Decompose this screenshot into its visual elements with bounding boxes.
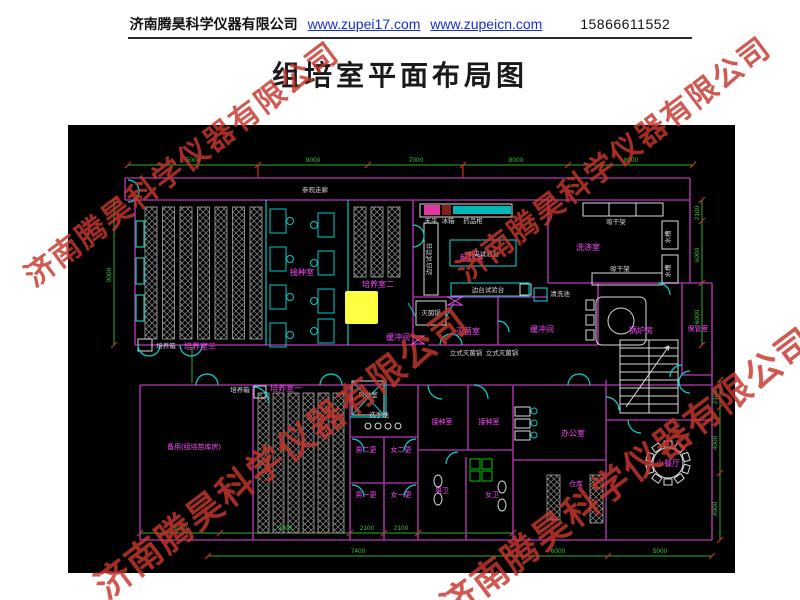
room-label: 男一更 — [356, 491, 377, 499]
rack-shelves — [145, 207, 603, 533]
room-label: 小餐厅 — [656, 459, 680, 468]
laminar-flow-hoods — [270, 209, 334, 347]
room-label: 培养室二 — [362, 279, 394, 289]
dim-label: 2100 — [694, 205, 701, 220]
room-label: 锅炉房 — [629, 325, 653, 335]
stairs — [620, 340, 678, 413]
dim-label: 4000 — [712, 435, 719, 450]
room-label: 仓库 — [569, 479, 583, 488]
equipment-label: 晾干架 — [606, 217, 626, 226]
page-header: 济南腾昊科学仪器有限公司 www.zupei17.com www.zupeicn… — [0, 14, 800, 34]
dim-label: 2100 — [360, 525, 375, 532]
phone-number: 15866611552 — [580, 16, 670, 32]
dim-label: 7400 — [351, 548, 366, 555]
dim-label: 4000 — [712, 501, 719, 516]
vendor-logo-strip — [424, 205, 511, 215]
room-label: 缓冲间 — [530, 324, 554, 334]
equipment-label: 边台试验台 — [472, 285, 505, 294]
page-title: 组培室平面布局图 — [0, 54, 800, 94]
floorplan-svg: 参观走廊 培养室三 接种室 培养室二 缓冲间 配药室 洗涤室 灭菌室 缓冲间 锅… — [68, 125, 735, 573]
equipment-label: 立式灭菌锅 — [486, 348, 519, 357]
dim-label: 8000 — [509, 157, 524, 164]
room-label: 缓冲间 — [386, 332, 410, 342]
room-label: 女一更 — [391, 490, 412, 499]
office-desks — [515, 407, 537, 440]
highlight-marker — [345, 291, 378, 324]
equipment-label: 水槽 — [663, 264, 672, 278]
hand-wash-basins — [365, 423, 401, 429]
equipment-label: 冰箱 — [442, 216, 456, 225]
dim-label: 6000 — [694, 247, 701, 262]
room-label: 接种室 — [479, 417, 500, 426]
header-divider — [128, 37, 692, 39]
room-label: 女卫 — [485, 490, 499, 499]
fan-symbols — [412, 297, 462, 344]
boiler-machine — [586, 297, 646, 345]
equipment-label: 边台试验台 — [424, 243, 433, 276]
room-label: 洗涤室 — [576, 242, 600, 252]
dim-label: 2100 — [394, 525, 409, 532]
dim-label: 6000 — [694, 309, 701, 324]
room-label: 培养室一 — [270, 383, 302, 393]
room-label: 接种室 — [432, 417, 453, 426]
room-label: 接种室 — [290, 267, 314, 277]
company-name: 济南腾昊科学仪器有限公司 — [130, 16, 298, 32]
equipment-label: 培养箱 — [230, 385, 250, 394]
floorplan-image: 参观走廊 培养室三 接种室 培养室二 缓冲间 配药室 洗涤室 灭菌室 缓冲间 锅… — [68, 125, 735, 573]
equipment-label: 立式灭菌锅 — [450, 348, 483, 357]
dim-label: 5000 — [186, 157, 201, 164]
dim-label: 7000 — [409, 157, 424, 164]
room-label: 办公室 — [561, 428, 585, 438]
room-label: 灭菌室 — [456, 326, 480, 336]
dim-label: 6000 — [551, 548, 566, 555]
dim-label: 5000 — [653, 548, 668, 555]
room-label: 保管室 — [688, 324, 709, 333]
room-label: 女二更 — [391, 445, 412, 454]
equipment-label: 晾干架 — [610, 264, 630, 273]
toilet-stalls — [470, 459, 492, 481]
walls — [125, 178, 712, 540]
drying-rack — [583, 203, 663, 216]
equipment-label: 天平 — [425, 217, 439, 225]
equipment-label: 清洗池 — [550, 289, 570, 298]
dim-label: 9000 — [278, 525, 293, 532]
equipment-label: 风淋室 — [358, 390, 378, 399]
link-zupei17[interactable]: www.zupei17.com — [308, 16, 421, 32]
equipment-label: 培养箱 — [156, 341, 176, 350]
link-zupeicn[interactable]: www.zupeicn.com — [430, 16, 542, 32]
room-label: 备用(组培苗库房) — [167, 442, 221, 451]
dim-label: 9000 — [306, 157, 321, 164]
dim-label: 5000 — [173, 525, 188, 532]
page: 济南腾昊科学仪器有限公司 www.zupei17.com www.zupeicn… — [0, 0, 800, 600]
incubator-boxes — [136, 221, 144, 321]
room-label: 男卫 — [435, 487, 449, 495]
equipment-label: 药品柜 — [463, 216, 483, 225]
corridor-label: 参观走廊 — [302, 185, 329, 194]
equipment-label: 灭菌锅 — [421, 308, 441, 317]
equipment-label: 洗手池 — [369, 410, 389, 419]
wash-sink — [534, 288, 547, 301]
room-label: 男二更 — [356, 446, 377, 454]
dim-label: 8000 — [624, 157, 639, 164]
room-label: 培养室三 — [184, 341, 216, 351]
dim-label: 9000 — [106, 267, 113, 282]
equipment-label: 水槽 — [663, 230, 672, 244]
equipment-label: 中央试验台 — [467, 249, 500, 258]
dim-label: 2100 — [712, 389, 719, 404]
